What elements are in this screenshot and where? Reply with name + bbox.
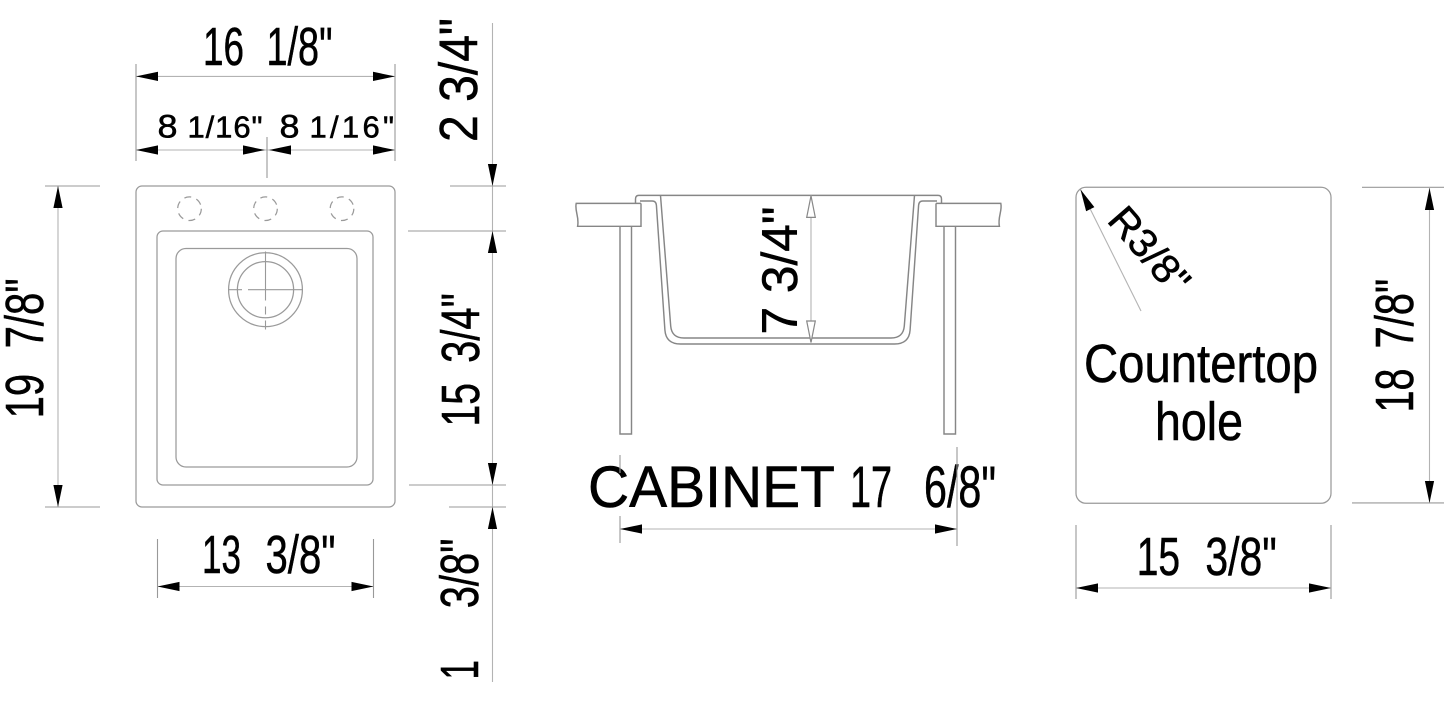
svg-text:6/8": 6/8" xyxy=(924,455,996,520)
svg-text:7/8": 7/8" xyxy=(1365,279,1425,349)
svg-text:3/8": 3/8" xyxy=(430,539,490,609)
svg-text:3/8": 3/8" xyxy=(1205,527,1276,587)
svg-text:8: 8 xyxy=(280,109,300,145)
svg-text:13: 13 xyxy=(202,525,241,585)
svg-text:1/16": 1/16" xyxy=(188,110,263,145)
svg-text:18: 18 xyxy=(1365,369,1425,413)
svg-text:7/8": 7/8" xyxy=(0,278,55,348)
svg-text:1/8": 1/8" xyxy=(267,17,333,77)
svg-text:3/4": 3/4" xyxy=(431,293,491,363)
svg-text:15: 15 xyxy=(431,383,491,427)
svg-text:7 3/4": 7 3/4" xyxy=(752,207,808,335)
svg-text:1: 1 xyxy=(430,660,490,679)
svg-text:Countertop: Countertop xyxy=(1084,334,1318,394)
svg-text:hole: hole xyxy=(1155,392,1243,452)
svg-text:19: 19 xyxy=(0,374,55,419)
svg-text:16: 16 xyxy=(203,17,244,77)
svg-text:3/8": 3/8" xyxy=(266,525,336,585)
svg-text:8: 8 xyxy=(158,109,178,145)
svg-text:CABINET: CABINET xyxy=(588,455,835,520)
svg-text:2 3/4": 2 3/4" xyxy=(429,18,489,142)
svg-text:15: 15 xyxy=(1137,527,1180,587)
svg-text:17: 17 xyxy=(850,455,892,520)
